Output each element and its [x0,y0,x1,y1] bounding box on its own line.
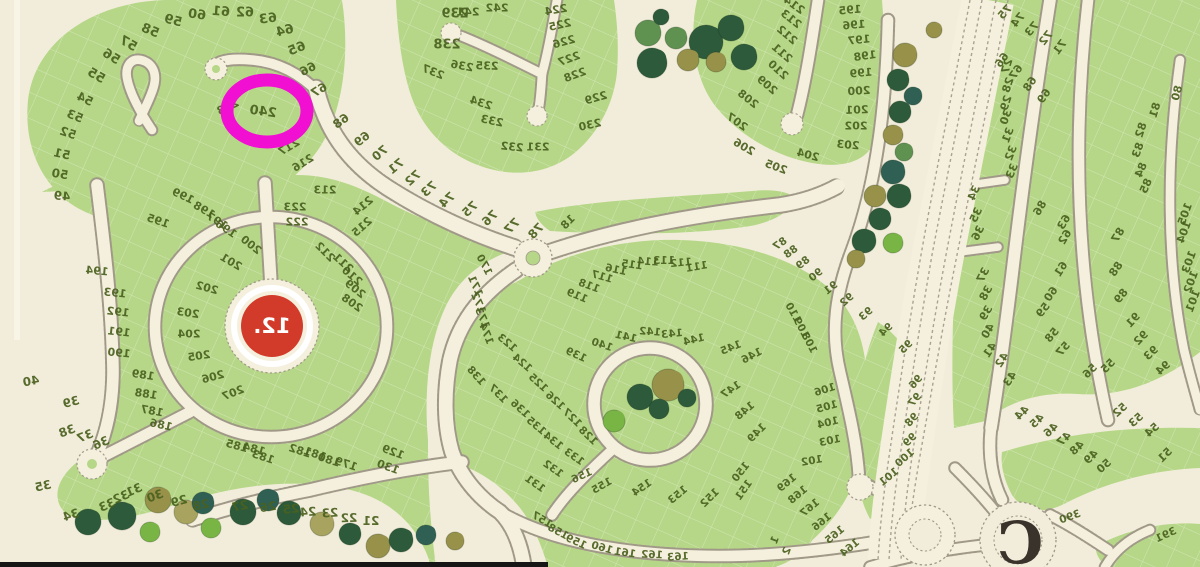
bottom-edge-bar [0,562,548,567]
lot-number: 21 [363,514,380,528]
lot-number: 223 [284,201,307,214]
culdesac-bulb [527,106,547,126]
scan-stripe [14,0,20,340]
lot-number: 193 [103,285,127,300]
lot-number: 232 [500,139,524,154]
tree-icon [603,410,625,432]
lot-number: 195 [838,3,862,18]
tree-icon [847,250,865,268]
lot-number: 238 [433,38,460,53]
lot-number: 24 [299,504,317,519]
lot-number: 22 [340,511,357,526]
road [265,183,271,284]
lot-number: 61 [211,4,230,20]
lot-number: 203 [836,138,860,153]
culdesac-island [212,65,220,73]
lot-number: 200 [847,84,871,98]
plat-map-canvas: 2404950515253545556575859606162636465666… [0,0,1200,567]
badge-label: 12. [253,314,290,338]
lot-number: 60 [187,6,207,23]
plat-map: 2404950515253545556575859606162636465666… [0,0,1200,567]
tree-icon [887,184,911,208]
tree-icon [864,185,886,207]
tree-icon [881,160,905,184]
lot-number: 201 [845,103,868,117]
lot-number: 26 [259,499,277,515]
tree-icon [339,523,361,545]
lot-number: 191 [107,324,131,339]
tree-icon [883,233,903,253]
section-marker-label: C [997,509,1043,567]
lot-number: 199 [849,66,873,81]
tree-icon [446,532,464,550]
lot-number: 231 [527,141,550,154]
lot-number: 27 [231,498,250,515]
culdesac-bulb [781,113,803,135]
tree-icon [649,399,669,419]
tree-icon [140,522,160,542]
lot-number: 213 [314,184,337,197]
tree-icon [869,208,891,230]
tree-icon [637,48,667,78]
tree-icon [895,143,913,161]
tree-icon [389,528,413,552]
tree-icon [201,518,221,538]
tree-icon [731,44,757,70]
tree-icon [416,525,436,545]
lot-number: 163 [667,550,690,564]
tree-icon [665,27,687,49]
lot-number: 196 [842,18,866,33]
lot-number: 192 [106,304,130,319]
lot-number: 25 [282,501,300,516]
lot-number: 202 [845,120,868,133]
lot-number: 239 [441,7,468,22]
lot-number: 62 [236,6,254,21]
roundabout-island [526,251,540,265]
lot-number: 242 [486,2,509,15]
lot-number: 194 [85,263,109,278]
tree-icon [653,9,669,25]
lot-number: 142 [639,325,662,338]
roundabout-island [909,519,941,551]
tree-icon [852,229,876,253]
lot-number: 190 [107,345,131,360]
lot-number: 49 [53,188,71,203]
tree-icon [893,43,917,67]
tree-icon [887,69,909,91]
lot-number: 162 [641,549,663,562]
tree-icon [678,389,696,407]
lot-number: 50 [51,166,70,183]
lot-number: 143 [660,327,683,341]
lot-number: 23 [321,506,338,521]
culdesac-island [87,459,97,469]
tree-icon [904,87,922,105]
tree-icon [883,125,903,145]
tree-icon [718,15,744,41]
roundabout [847,474,873,500]
tree-icon [889,101,911,123]
lot-number: 197 [847,32,871,47]
tree-icon [677,49,699,71]
tree-icon [926,22,942,38]
lot-number: 204 [177,328,200,341]
lot-number: 40 [22,373,41,390]
tree-icon [706,52,726,72]
lot-number: 235 [475,59,498,73]
lot-number: 222 [286,216,309,229]
tree-icon [366,534,390,558]
